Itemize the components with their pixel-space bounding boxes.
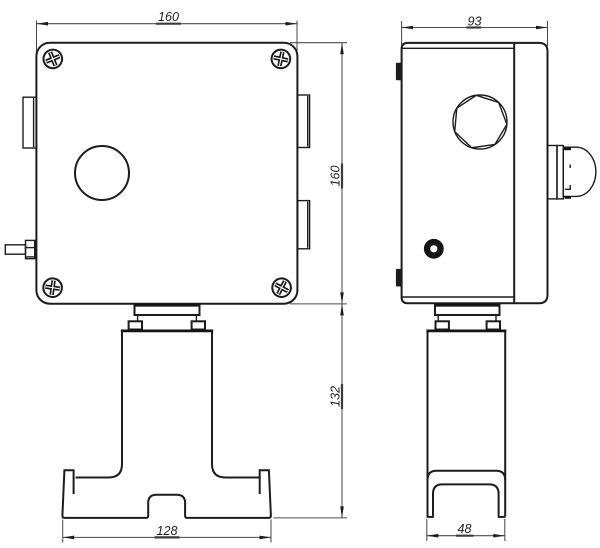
svg-text:160: 160 bbox=[329, 165, 343, 186]
svg-text:132: 132 bbox=[329, 386, 343, 407]
svg-text:160: 160 bbox=[158, 10, 179, 24]
svg-text:48: 48 bbox=[457, 522, 471, 536]
svg-text:128: 128 bbox=[156, 524, 177, 538]
